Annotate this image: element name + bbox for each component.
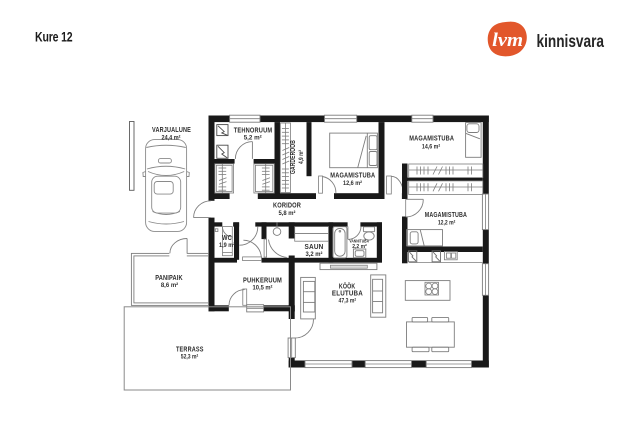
svg-text:TERRASS: TERRASS: [176, 347, 204, 354]
svg-text:ELUTUBA: ELUTUBA: [332, 290, 363, 297]
svg-text:PUHKERUUM: PUHKERUUM: [243, 277, 282, 284]
svg-text:24,4 m²: 24,4 m²: [162, 134, 181, 141]
svg-text:VARJUALUNE: VARJUALUNE: [152, 127, 191, 134]
svg-text:MAGAMISTUBA: MAGAMISTUBA: [425, 212, 467, 219]
svg-text:GARDEROOB: GARDEROOB: [290, 140, 297, 174]
svg-text:47,3 m²: 47,3 m²: [339, 297, 357, 304]
svg-text:4,9 m²: 4,9 m²: [298, 150, 305, 164]
svg-text:kinnisvara: kinnisvara: [537, 31, 605, 51]
svg-text:SAUN: SAUN: [305, 244, 324, 251]
svg-text:12,2 m²: 12,2 m²: [438, 219, 456, 226]
svg-text:8,6 m²: 8,6 m²: [161, 282, 178, 289]
svg-text:WC: WC: [222, 235, 232, 242]
svg-text:1,9 m²: 1,9 m²: [219, 242, 235, 249]
svg-text:5,8 m²: 5,8 m²: [279, 210, 296, 217]
svg-text:TEHNORUUM: TEHNORUUM: [234, 127, 273, 134]
svg-text:2,2 m²: 2,2 m²: [352, 243, 367, 250]
svg-text:PANIPAIK: PANIPAIK: [155, 275, 183, 282]
svg-text:14,6 m²: 14,6 m²: [422, 143, 440, 150]
svg-text:5,2 m²: 5,2 m²: [244, 134, 262, 141]
svg-text:lvm: lvm: [492, 30, 523, 51]
svg-text:MAGAMISTUBA: MAGAMISTUBA: [409, 136, 454, 143]
svg-text:Kure 12: Kure 12: [35, 30, 73, 45]
svg-text:12,6 m²: 12,6 m²: [343, 180, 362, 187]
svg-text:KORIDOR: KORIDOR: [273, 203, 301, 210]
svg-text:MAGAMISTUBA: MAGAMISTUBA: [330, 172, 375, 179]
svg-text:3,2 m²: 3,2 m²: [306, 251, 323, 258]
svg-text:KÖÖK: KÖÖK: [339, 282, 356, 291]
svg-text:10,5 m²: 10,5 m²: [253, 285, 273, 292]
svg-text:52,3 m²: 52,3 m²: [181, 354, 199, 361]
